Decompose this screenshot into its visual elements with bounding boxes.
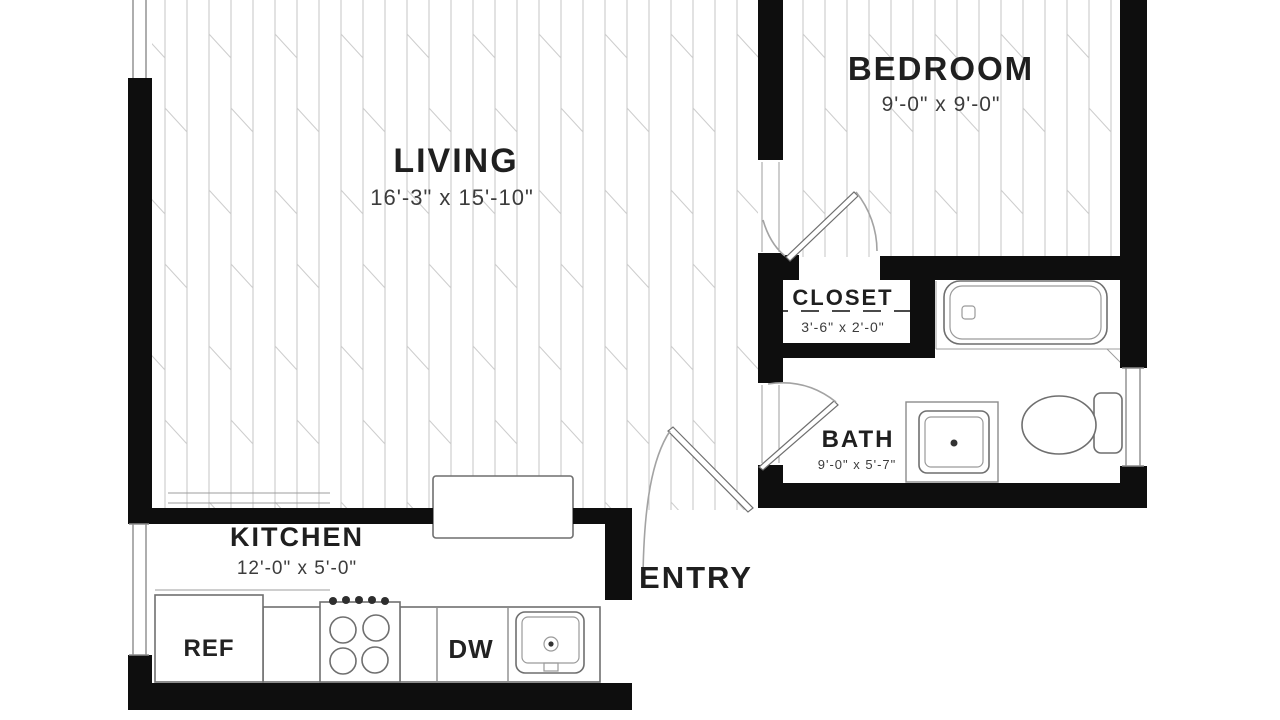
stove-knob: [381, 597, 389, 605]
stove: [320, 596, 400, 682]
bath-dims: 9'-0" x 5'-7": [818, 457, 897, 472]
stove-knob: [368, 596, 376, 604]
burner: [363, 615, 389, 641]
right-wall-corner: [1120, 466, 1147, 508]
kitchen-sink: [516, 612, 584, 673]
closet-bottom-wall: [783, 343, 935, 358]
stove-knob: [355, 596, 363, 604]
burner: [330, 648, 356, 674]
toilet: [1022, 393, 1122, 454]
bathtub: [936, 281, 1122, 364]
bath-bottom-wall: [758, 483, 1147, 508]
living-dims: 16'-3" x 15'-10": [370, 185, 534, 210]
bedroom-dims: 9'-0" x 9'-0": [882, 93, 1001, 116]
left-exterior-wall: [128, 78, 152, 524]
window-right: [1122, 368, 1144, 466]
refrigerator-label: REF: [184, 635, 235, 662]
kitchen-pass-through-counter: [433, 476, 573, 538]
floor-plan-page: LIVING 16'-3" x 15'-10" BEDROOM 9'-0" x …: [0, 0, 1280, 720]
bottom-exterior-wall: [128, 683, 632, 710]
burner: [330, 617, 356, 643]
entry-wall: [605, 524, 632, 600]
kitchen-label: KITCHEN: [230, 522, 364, 552]
bedroom-label: BEDROOM: [848, 50, 1034, 87]
closet-label: CLOSET: [792, 285, 893, 310]
kitchen-dims: 12'-0" x 5'-0": [237, 558, 357, 579]
dishwasher-label: DW: [448, 634, 493, 664]
stove-knob: [342, 596, 350, 604]
living-bedroom-wall: [758, 0, 783, 160]
entry-label: ENTRY: [639, 560, 753, 595]
living-room-floor: [152, 0, 758, 510]
closet-wall: [758, 253, 783, 383]
bath-label: BATH: [822, 426, 895, 453]
right-exterior-wall: [1120, 0, 1147, 368]
living-label: LIVING: [393, 142, 518, 180]
kitchen-wall-right: [573, 508, 632, 524]
bathroom-sink: [906, 402, 998, 482]
floor-plan: LIVING 16'-3" x 15'-10" BEDROOM 9'-0" x …: [0, 0, 1280, 720]
stove-knob: [329, 597, 337, 605]
window-left-top: [133, 0, 146, 78]
closet-dims: 3'-6" x 2'-0": [801, 319, 885, 335]
window-left-bottom: [129, 524, 149, 655]
bathroom-door-swing: [768, 383, 836, 402]
burner: [362, 647, 388, 673]
